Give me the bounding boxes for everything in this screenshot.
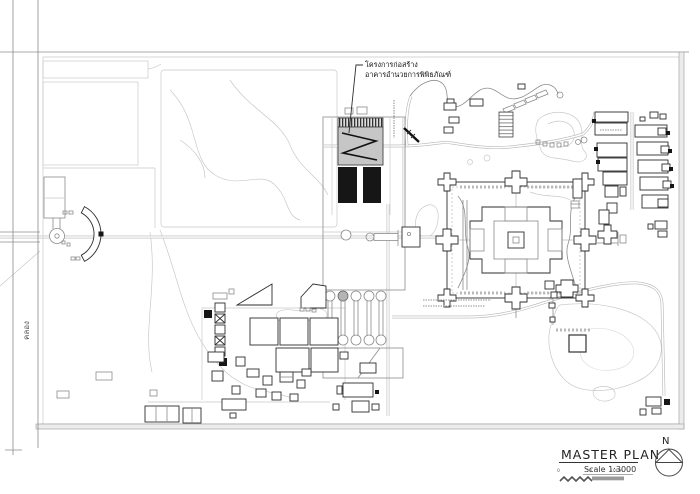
- paper-background: [0, 0, 700, 494]
- canal-label: คลอง: [22, 321, 31, 340]
- building-block-east: [363, 167, 381, 203]
- fountain: [341, 230, 351, 240]
- master-plan-sheet: คลอง: [0, 0, 700, 494]
- site-plan-drawing: คลอง: [0, 0, 700, 494]
- scale-tick-end: 100m.: [610, 468, 624, 474]
- construction-note-line2: อาคารอำนวยการพิพิธภัณฑ์: [365, 70, 451, 79]
- building-block-west: [338, 167, 357, 203]
- north-label: N: [662, 436, 669, 447]
- pavilion-building: [569, 335, 586, 352]
- drawing-title: MASTER PLAN: [561, 447, 660, 462]
- construction-note-line1: โครงการก่อสร้าง: [365, 60, 418, 69]
- building-entrance-canopy: [338, 118, 383, 127]
- gate-pavilion: [402, 227, 420, 247]
- scale-tick-mid: 50: [586, 468, 592, 474]
- striped-building: [499, 112, 513, 137]
- scale-tick-zero: 0: [557, 468, 560, 474]
